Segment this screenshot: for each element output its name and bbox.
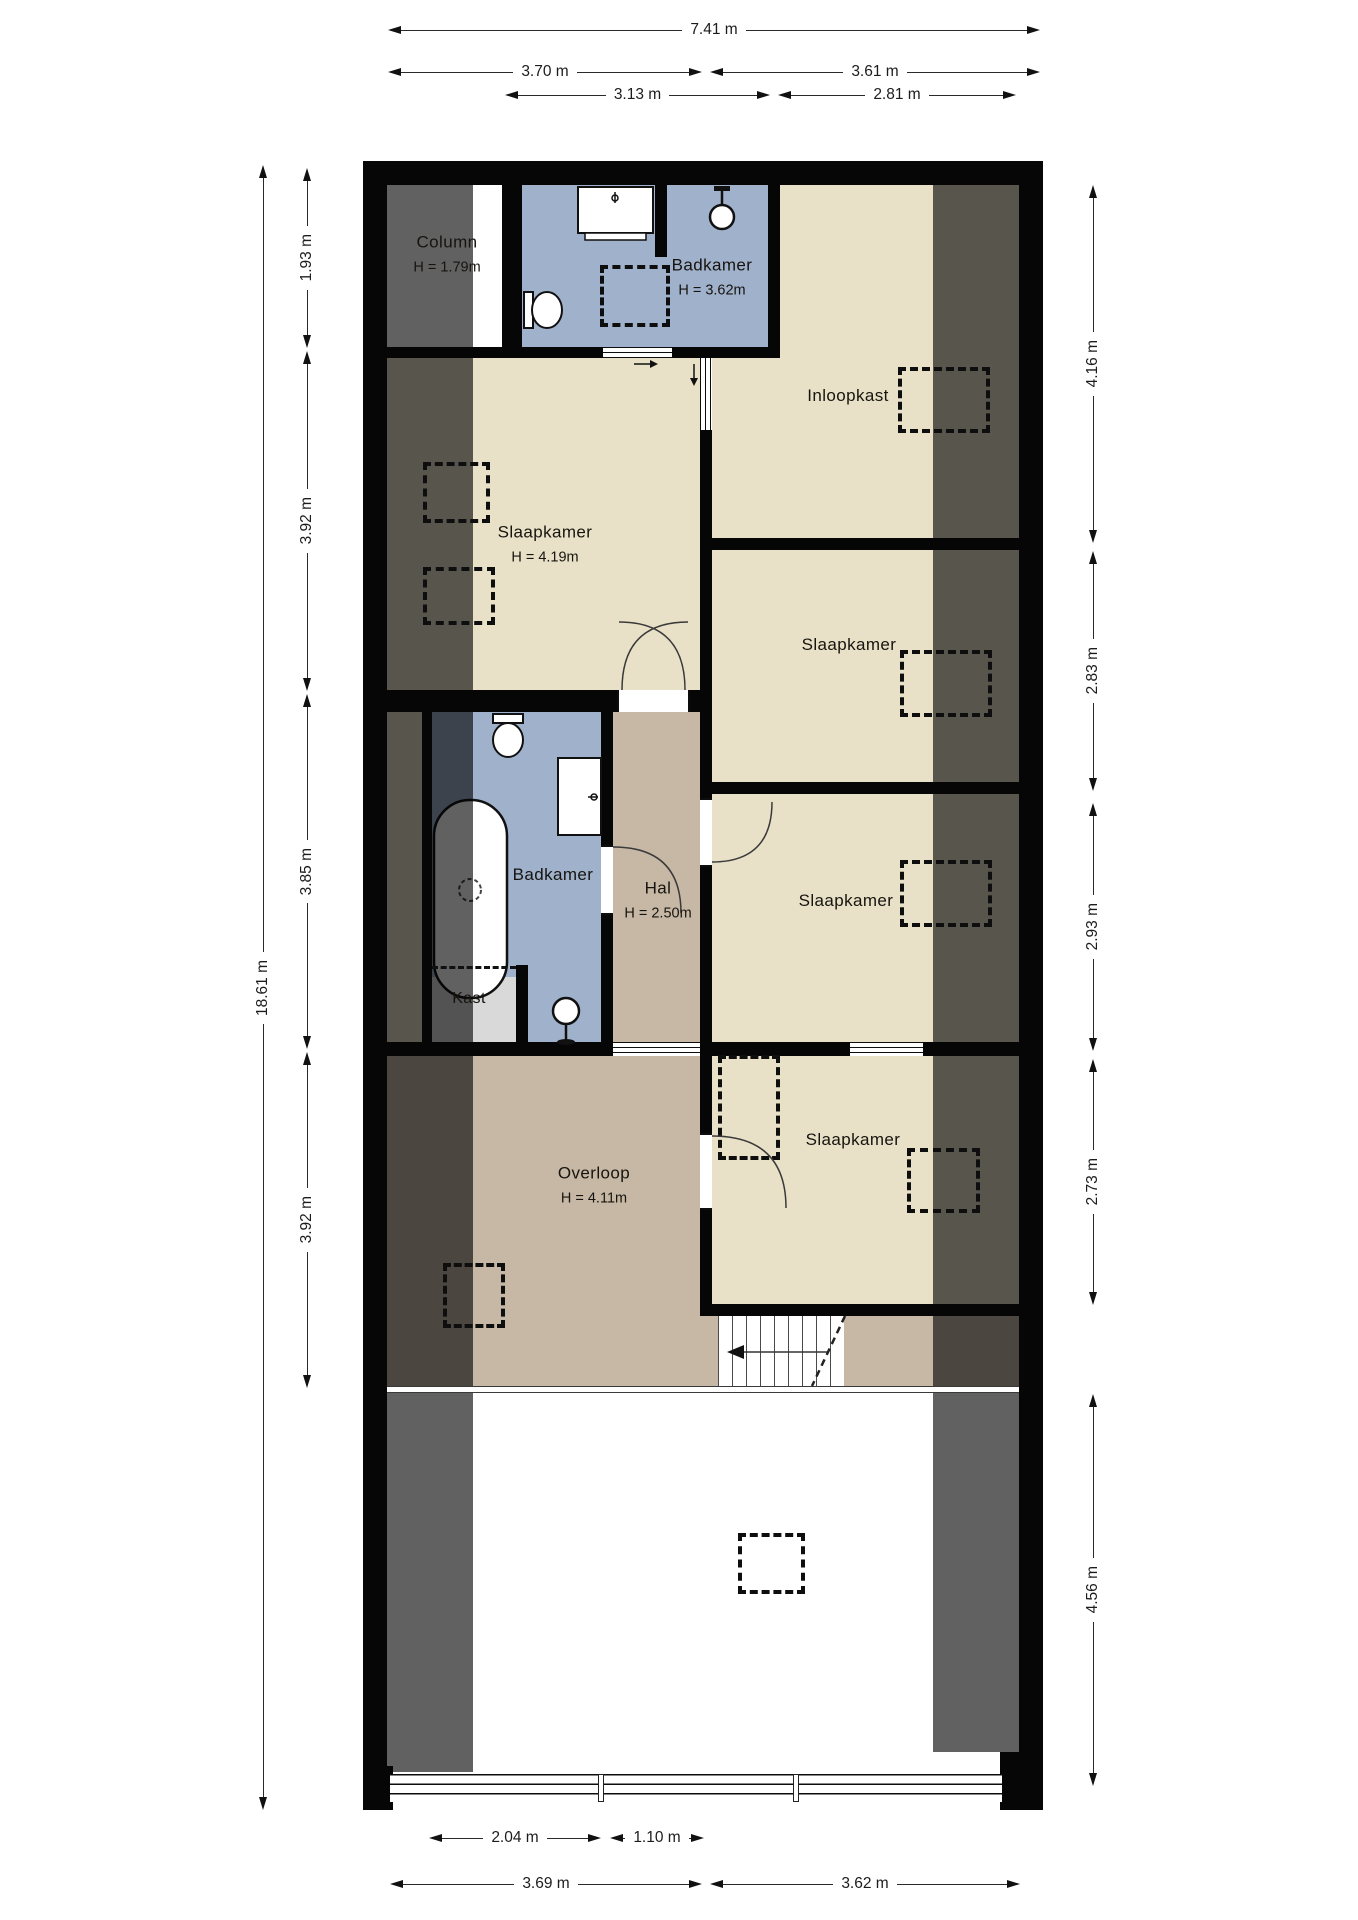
dimension-bottom-outer-right: 3.62 m <box>710 1876 1020 1892</box>
room-label-slaapkamer-4: Slaapkamer <box>806 1130 901 1150</box>
dimension-right-segment: 2.73 m <box>1085 1059 1101 1305</box>
room-label-badkamer-mid: Badkamer <box>513 865 594 885</box>
shower-icon <box>553 998 579 1045</box>
dimension-left-segment: 3.85 m <box>299 694 315 1049</box>
dimension-left-segment: 3.92 m <box>299 1052 315 1388</box>
floor-plan: Column H = 1.79m Badkamer H = 3.62m Inlo… <box>0 0 1358 1920</box>
toilet-icon <box>524 292 562 328</box>
dimension-right-segment: 4.56 m <box>1085 1394 1101 1786</box>
room-label-kast: Kast <box>452 990 486 1008</box>
pendant-light-icon <box>710 186 734 229</box>
dimension-left-segment: 1.93 m <box>299 168 315 348</box>
stairs-arrow-icon <box>727 1316 845 1386</box>
dimension-left-total: 18.61 m <box>255 165 271 1810</box>
dimension-top-inner-right: 2.81 m <box>778 87 1016 103</box>
door-arrow-icon <box>634 360 698 386</box>
room-label-hal: Hal H = 2.50m <box>624 879 691 922</box>
room-label-badkamer-top: Badkamer H = 3.62m <box>672 256 753 299</box>
dimension-left-segment: 3.92 m <box>299 351 315 691</box>
room-label-inloopkast: Inloopkast <box>807 386 889 406</box>
dimension-bottom-inner-left: 2.04 m <box>429 1830 601 1846</box>
sink-icon <box>578 187 653 240</box>
dimension-top-split-left: 3.70 m <box>388 64 702 80</box>
dimension-top-inner-left: 3.13 m <box>505 87 770 103</box>
dimension-bottom-outer-left: 3.69 m <box>390 1876 702 1892</box>
room-label-slaapkamer-2: Slaapkamer <box>802 635 897 655</box>
sink-icon <box>558 758 601 835</box>
dimension-right-segment: 2.93 m <box>1085 803 1101 1051</box>
dimension-right-segment: 4.16 m <box>1085 185 1101 543</box>
toilet-icon <box>493 714 523 757</box>
dimension-right-segment: 2.83 m <box>1085 551 1101 791</box>
room-label-slaapkamer-1: Slaapkamer H = 4.19m <box>498 523 593 566</box>
dimension-top-total: 7.41 m <box>388 22 1040 38</box>
room-label-overloop: Overloop H = 4.11m <box>558 1164 630 1207</box>
room-label-slaapkamer-3: Slaapkamer <box>799 891 894 911</box>
dimension-bottom-inner-right: 1.10 m <box>610 1830 704 1846</box>
room-label-column: Column H = 1.79m <box>413 233 480 276</box>
dimension-top-split-right: 3.61 m <box>710 64 1040 80</box>
